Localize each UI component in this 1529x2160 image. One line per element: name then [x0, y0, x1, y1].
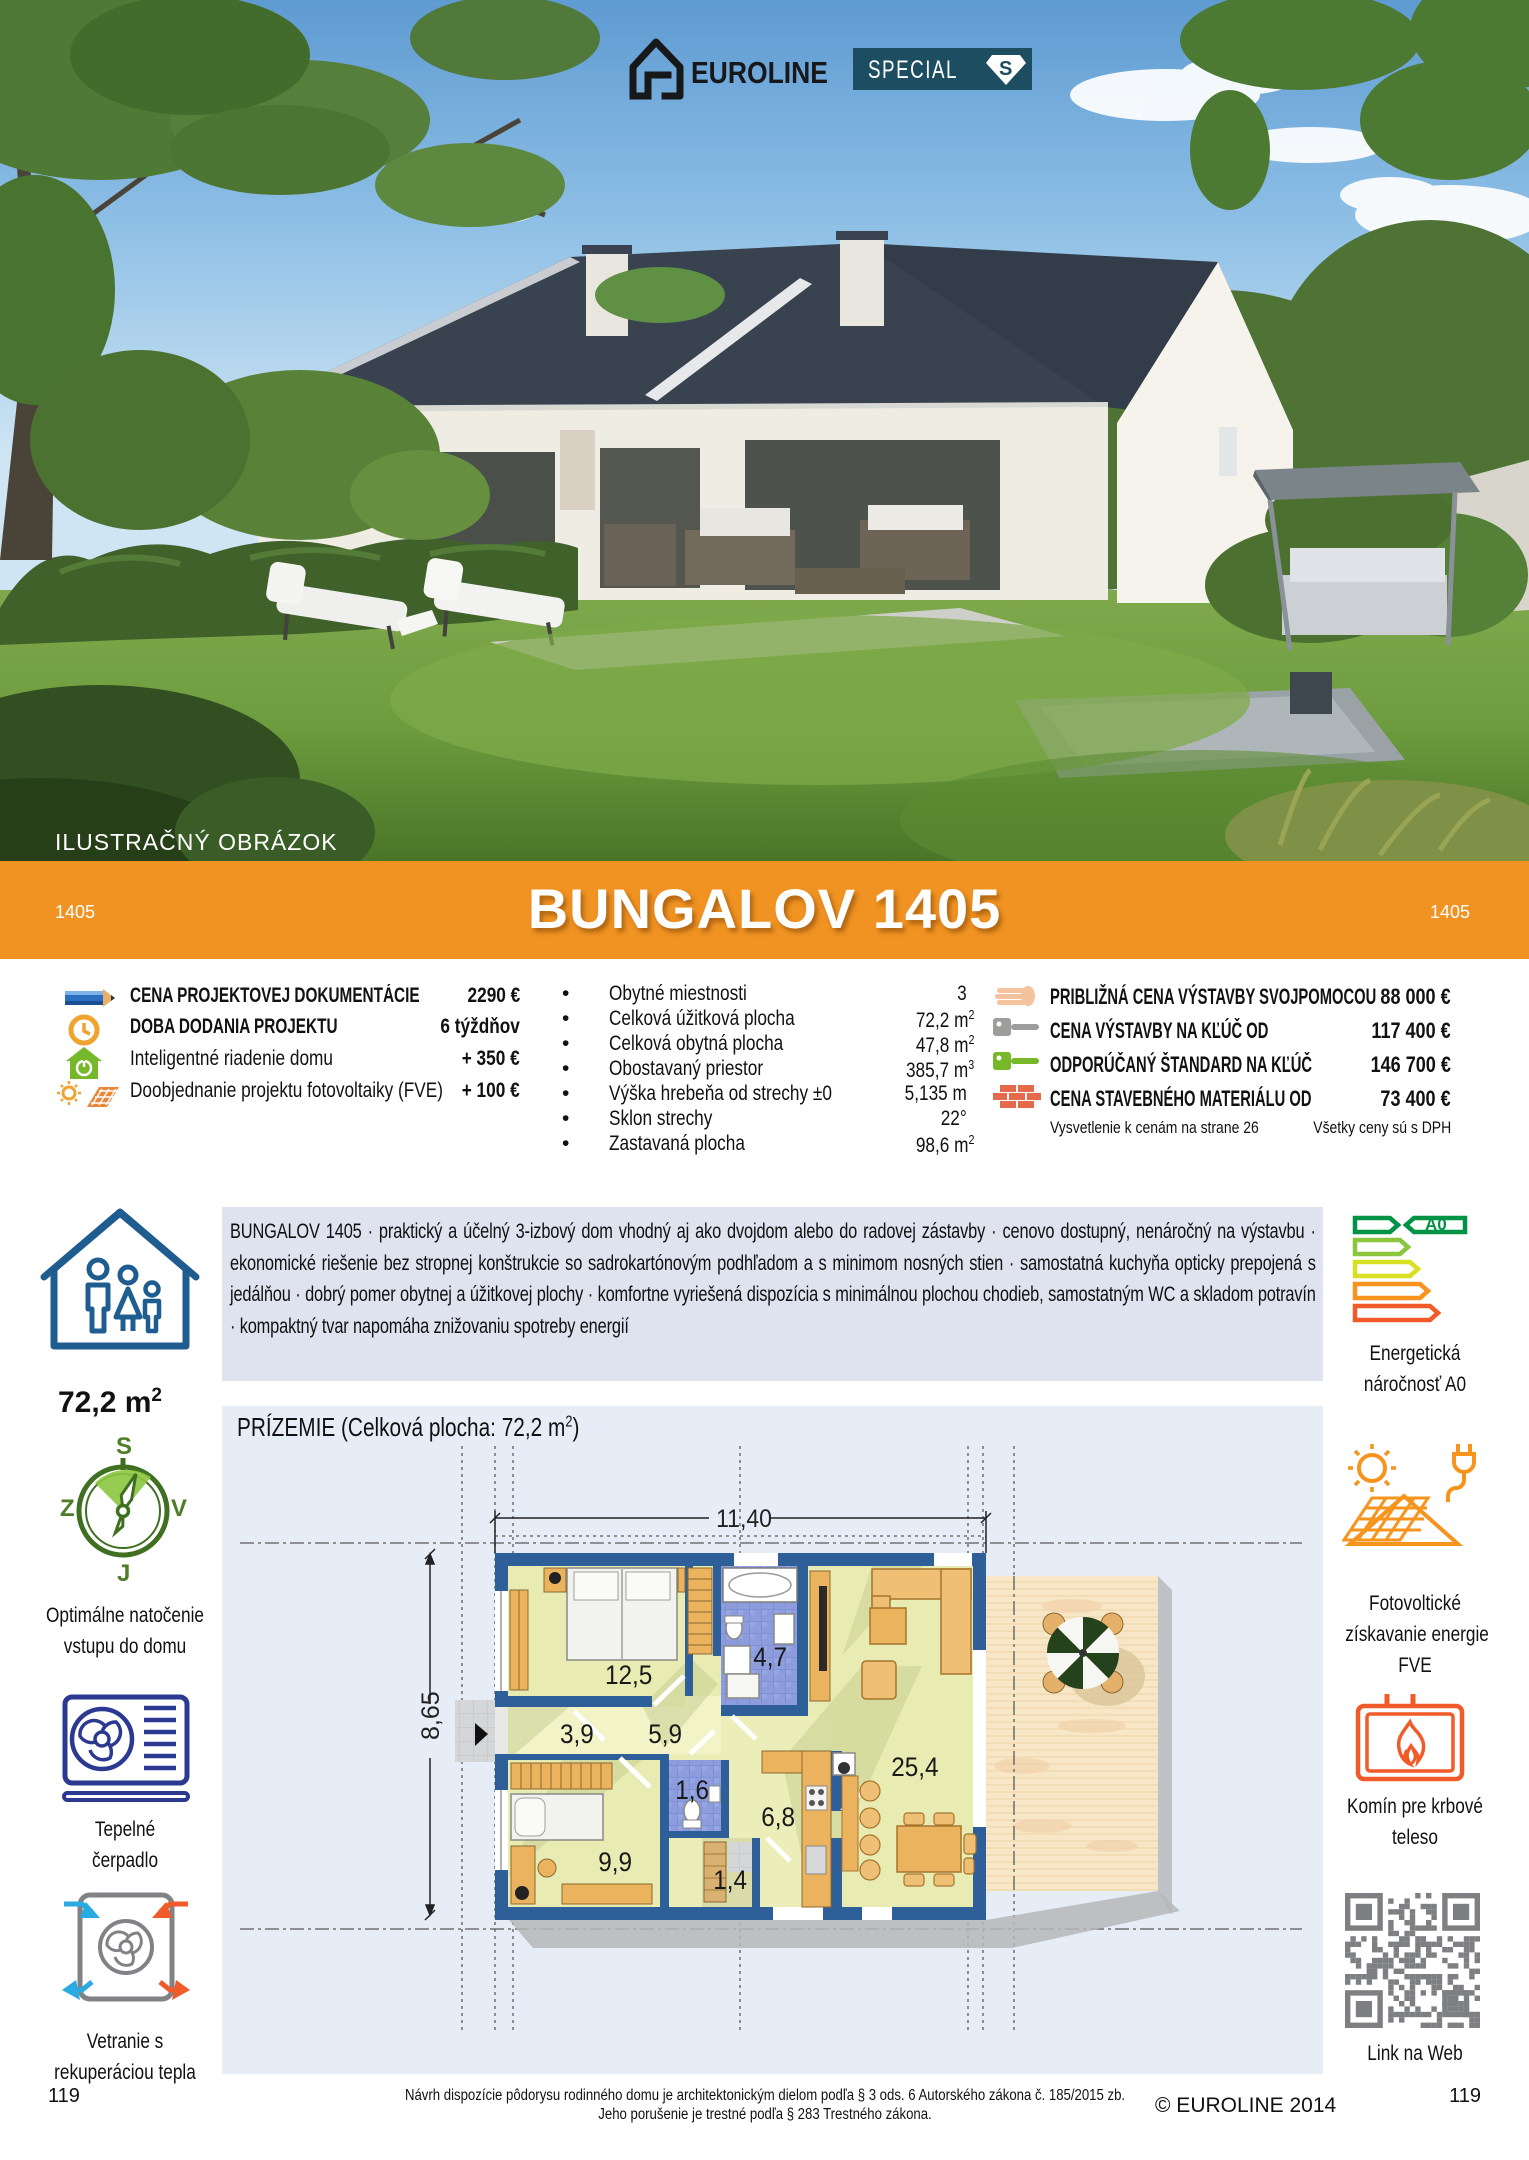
svg-text:25,4: 25,4 — [891, 1753, 938, 1782]
svg-text:12,5: 12,5 — [605, 1661, 652, 1690]
svg-text:EUROLINE: EUROLINE — [691, 55, 828, 90]
svg-text:1,6: 1,6 — [675, 1776, 709, 1805]
svg-text:3,9: 3,9 — [560, 1720, 594, 1749]
svg-text:4,7: 4,7 — [753, 1643, 787, 1672]
svg-text:SPECIAL: SPECIAL — [868, 56, 958, 84]
svg-text:V: V — [171, 1495, 187, 1522]
svg-text:9,9: 9,9 — [598, 1848, 632, 1877]
svg-text:8,65: 8,65 — [417, 1691, 445, 1740]
svg-text:S: S — [116, 1436, 132, 1460]
svg-text:11,40: 11,40 — [716, 1505, 772, 1533]
svg-text:5,9: 5,9 — [648, 1720, 682, 1749]
svg-text:1,4: 1,4 — [713, 1866, 747, 1895]
svg-text:ILUSTRAČNÝ OBRÁZOK: ILUSTRAČNÝ OBRÁZOK — [55, 828, 338, 855]
svg-text:J: J — [117, 1560, 130, 1586]
svg-text:6,8: 6,8 — [761, 1803, 795, 1832]
svg-text:S: S — [999, 58, 1012, 80]
svg-text:A0: A0 — [1425, 1215, 1447, 1234]
svg-text:Z: Z — [60, 1495, 75, 1522]
